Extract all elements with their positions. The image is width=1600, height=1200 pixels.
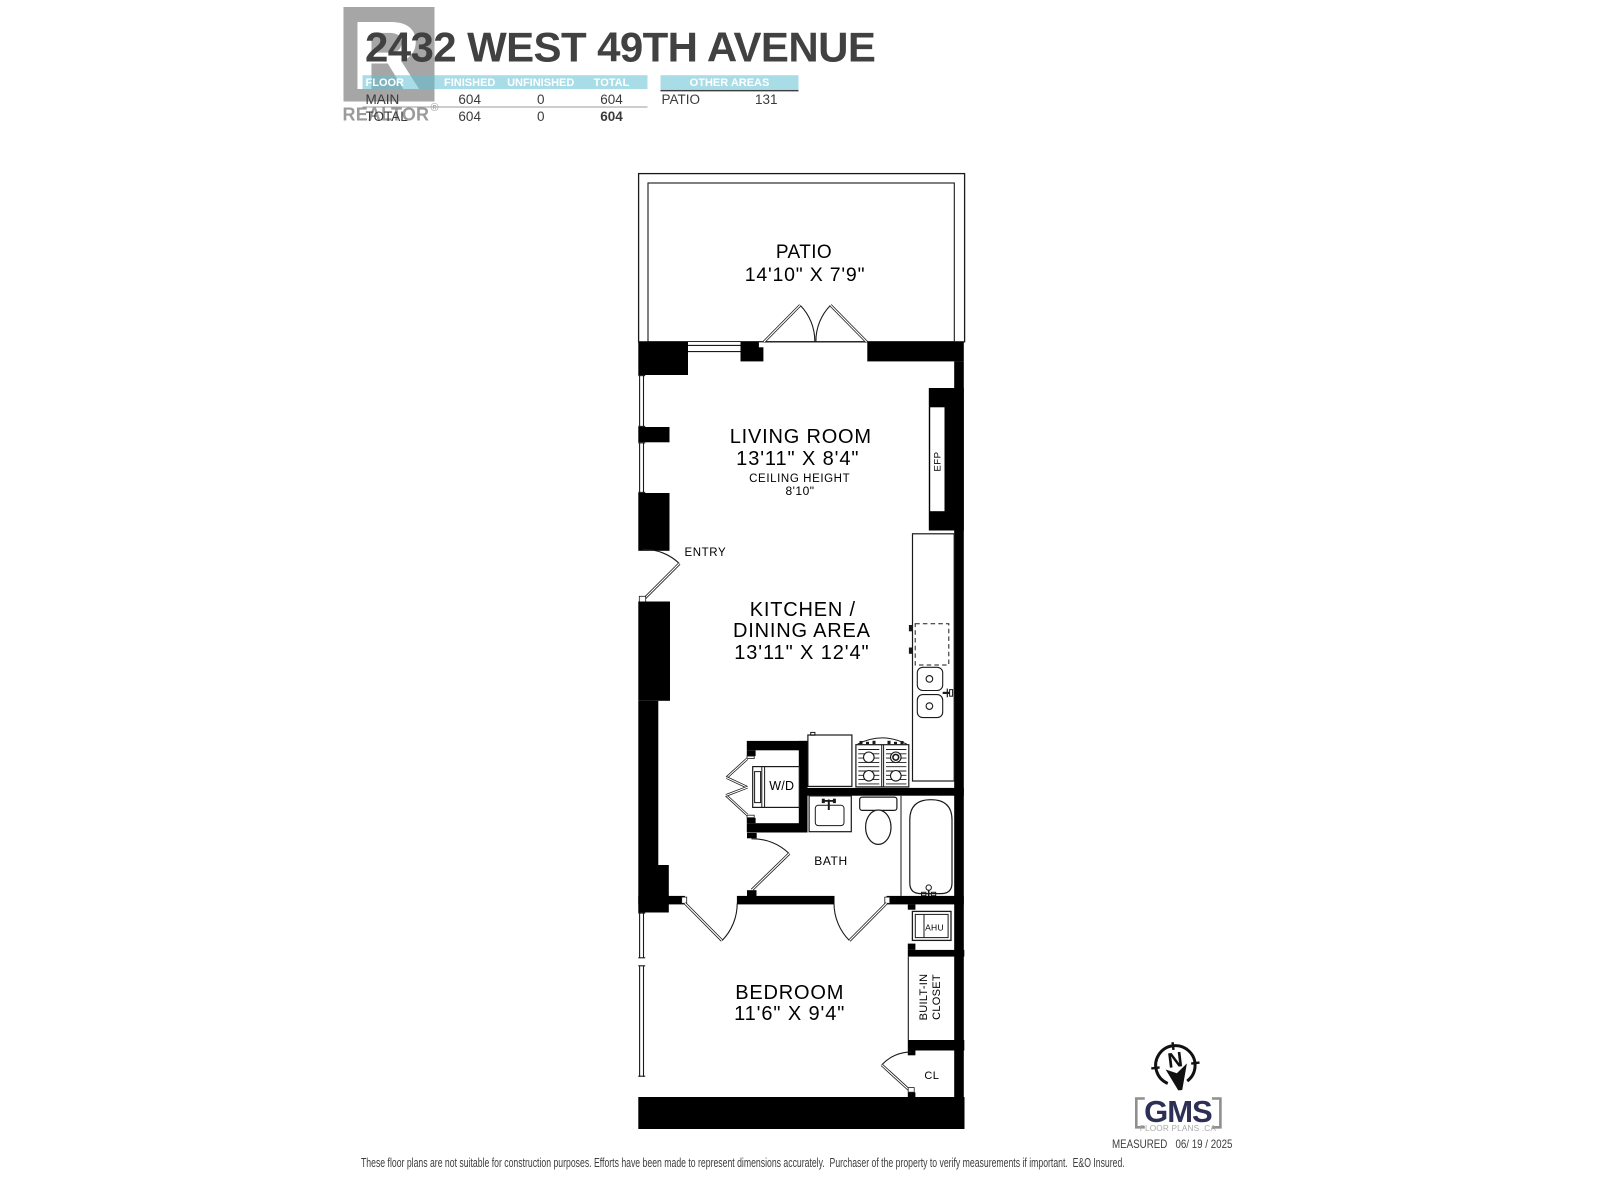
- svg-text:2432 WEST 49TH AVENUE: 2432 WEST 49TH AVENUE: [365, 24, 875, 71]
- svg-text:OTHER AREAS: OTHER AREAS: [690, 77, 770, 89]
- svg-text:604: 604: [458, 92, 481, 107]
- svg-text:EFP: EFP: [933, 452, 944, 472]
- svg-text:UNFINISHED: UNFINISHED: [507, 77, 574, 89]
- svg-text:PATIO: PATIO: [662, 92, 701, 107]
- svg-text:604: 604: [600, 109, 623, 124]
- svg-text:W/D: W/D: [769, 779, 794, 793]
- svg-text:TOTAL: TOTAL: [594, 77, 630, 89]
- svg-text:KITCHEN /: KITCHEN /: [750, 599, 856, 621]
- svg-text:PATIO: PATIO: [776, 242, 832, 263]
- svg-text:131: 131: [755, 92, 778, 107]
- svg-text:These floor plans are not suit: These floor plans are not suitable for c…: [361, 1156, 1125, 1170]
- svg-text:14'10" X 7'9": 14'10" X 7'9": [745, 264, 866, 286]
- svg-text:FINISHED: FINISHED: [444, 77, 495, 89]
- svg-text:0: 0: [537, 92, 545, 107]
- svg-text:CL: CL: [924, 1070, 939, 1082]
- svg-text:ENTRY: ENTRY: [685, 547, 727, 559]
- svg-text:11'6" X 9'4": 11'6" X 9'4": [734, 1003, 845, 1025]
- svg-text:8'10": 8'10": [785, 484, 814, 498]
- svg-text:BUILT-IN: BUILT-IN: [918, 974, 930, 1021]
- svg-text:®: ®: [431, 102, 439, 114]
- svg-text:FLOOR: FLOOR: [366, 77, 405, 89]
- svg-text:BATH: BATH: [814, 854, 848, 868]
- svg-text:13'11" X 12'4": 13'11" X 12'4": [734, 642, 869, 664]
- svg-text:TOTAL: TOTAL: [366, 109, 409, 124]
- svg-text:AHU: AHU: [925, 923, 944, 933]
- svg-text:604: 604: [600, 92, 623, 107]
- svg-text:MAIN: MAIN: [366, 92, 400, 107]
- svg-text:DINING AREA: DINING AREA: [733, 620, 871, 642]
- svg-text:BEDROOM: BEDROOM: [735, 982, 844, 1004]
- svg-text:MEASURED 06/ 19 / 2025: MEASURED 06/ 19 / 2025: [1112, 1138, 1233, 1151]
- svg-text:0: 0: [537, 109, 545, 124]
- svg-text:13'11" X 8'4": 13'11" X 8'4": [736, 448, 859, 470]
- svg-text:LIVING ROOM: LIVING ROOM: [730, 426, 872, 448]
- svg-text:CLOSET: CLOSET: [931, 974, 943, 1020]
- svg-text:FLOOR PLANS .CA: FLOOR PLANS .CA: [1140, 1124, 1217, 1133]
- svg-text:604: 604: [458, 109, 481, 124]
